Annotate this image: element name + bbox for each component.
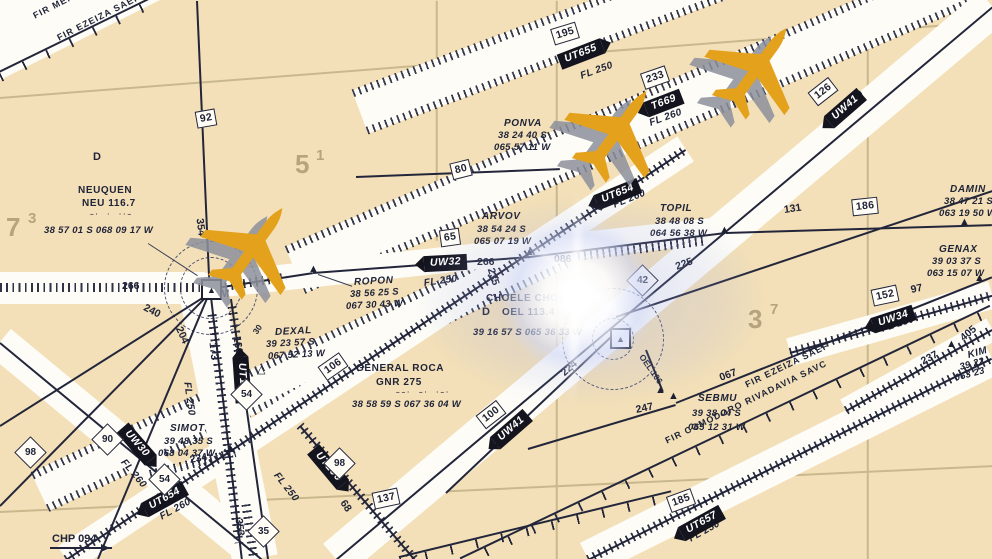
waypoint-triangle-kim: ▲ [946,338,957,350]
navaid-roca-coords: 38 58 59 S 067 36 04 W [352,400,461,410]
fix-arvov-lon: 065 07 19 W [474,237,531,247]
navaid-choele-name: CHOELE CHOEL [486,294,573,305]
vor-symbol-choele-choel: ▲ [610,328,631,349]
radial-067: 067 [718,367,738,383]
navaid-choele-ident: OEL 113.4 [502,308,555,319]
navaid-neuquen-name: NEUQUEN [78,186,132,197]
navaid-choele-dme: D [482,307,490,319]
waypoint-triangle-ropon: ▲ [308,263,319,275]
airway-arrow-icon [670,527,686,545]
radial-247: 247 [635,401,654,415]
airway-arrow-icon [232,348,249,358]
graticule-line [556,1,558,559]
margin-chp-094: CHP 094 [50,534,112,549]
airway-badge-uw32: UW32 [424,254,468,272]
arrowhead-oel-106: ▲ [655,384,666,396]
distance-box-92: 92 [195,108,218,128]
grid-digit-3: 3 [748,306,762,333]
distance-131: 131 [783,203,802,216]
grid-digit-7-sup: 3 [28,211,36,227]
distance-diamond-label: 98 [25,447,36,458]
danger-area-d: D [93,152,101,164]
radial-173: 173 [207,342,220,361]
navaid-neuquen-ident: NEU 116.7 [82,199,136,210]
navaid-roca-name: GENERAL ROCA [356,364,444,375]
fix-simot-name: SIMOT [170,424,205,435]
radial-353: 353 [233,518,246,537]
fix-sebmu-name: SEBMU [698,394,737,405]
fix-sebmu-lat: 39 38 04 S [692,409,741,419]
fix-damin-lat: 38 47 21 S [944,197,992,207]
navaid-neuquen-morse: –· · ··– [90,212,133,219]
grid-digit-5-sup: 1 [316,148,324,164]
waypoint-triangle-genax: ▲ [974,272,985,284]
distance-diamond-label: 35 [258,526,269,537]
distance-diamond-label: 42 [637,275,648,286]
navaid-choele-coords: 39 16 57 S 065 36 33 W [473,328,582,338]
fix-sebmu-lon: 065 12 31 W [688,423,745,433]
distance-box-152: 152 [871,284,900,306]
waypoint-triangle-simot: ▲ [225,443,236,455]
fix-arvov-lat: 38 54 24 S [477,225,526,235]
waypoint-triangle-sebmu: ▲ [668,390,679,402]
route-uw32-d [726,224,992,234]
distance-diamond-label: 54 [159,474,170,485]
airway-arrow-icon [415,256,425,272]
radial-240: 240 [141,303,162,321]
distance-diamond-label: 98 [334,458,345,469]
navaid-neuquen-coords: 38 57 01 S 068 09 17 W [44,226,153,236]
distance-diamond-label: 54 [241,389,252,400]
fix-genax-name: GENAX [939,245,978,256]
radial-266-uw32: 266 [477,257,495,268]
fix-ponva-name: PONVA [504,119,542,130]
fix-genax-lat: 39 03 37 S [932,257,981,267]
radial-266-west: 266 [122,281,140,292]
fix-topil-lat: 38 48 08 S [655,217,704,227]
airway-badge-label: UW32 [430,255,462,269]
distance-box-186: 186 [851,197,879,217]
distance-box-65: 65 [439,228,461,248]
fix-arvov-name: ARVOV [482,212,521,223]
fix-simot-lat: 39 48 35 S [164,437,213,447]
fix-topil-lon: 064 56 38 W [650,229,707,239]
navaid-roca-morse: ––· –· ·–· [396,390,450,397]
waypoint-triangle-dexal: △ [257,363,265,376]
grid-digit-7: 7 [6,214,20,241]
navaid-roca-ident: GNR 275 [376,378,422,389]
enroute-aeronautical-chart: ▲▲▲▲▲▲▲▲▲▲△▲FIR MENDOZA SAFIR EZEIZA SAE… [0,0,992,559]
distance-97: 97 [910,283,924,296]
distance-diamond-label: 90 [102,434,113,445]
grid-digit-3-sup: 7 [770,302,778,318]
fix-topil-name: TOPIL [660,204,692,215]
waypoint-triangle-damin: ▲ [959,216,970,228]
waypoint-triangle-topil: ▲ [719,224,730,236]
hatch-266 [0,283,205,292]
fix-damin-name: DAMIN [950,185,986,196]
grid-digit-5: 5 [295,151,309,178]
waypoint-triangle-arvov: ▲ [524,246,535,258]
distance-68: 68 [337,498,353,514]
radial-086: 086 [554,254,572,265]
